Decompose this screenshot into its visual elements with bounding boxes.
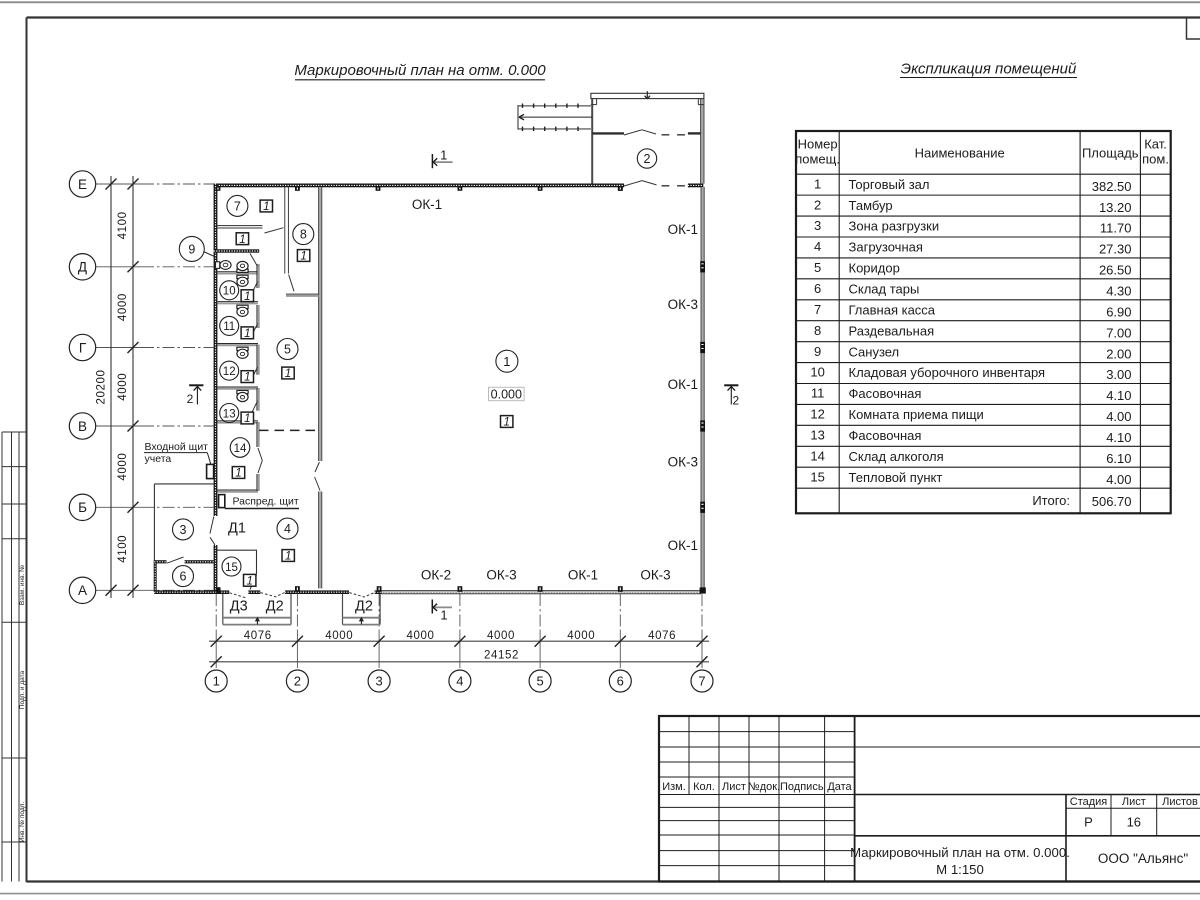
svg-text:Е: Е bbox=[78, 177, 87, 192]
svg-text:6: 6 bbox=[180, 570, 187, 584]
svg-text:Маркировочный план на отм. 0.0: Маркировочный план на отм. 0.000 bbox=[294, 62, 546, 79]
svg-text:Лист: Лист bbox=[722, 781, 746, 793]
svg-text:3: 3 bbox=[180, 523, 187, 537]
svg-text:3: 3 bbox=[814, 218, 821, 233]
svg-text:ОК-1: ОК-1 bbox=[668, 222, 698, 237]
svg-text:Зона разгрузки: Зона разгрузки bbox=[849, 219, 940, 234]
svg-text:1: 1 bbox=[239, 234, 245, 246]
svg-text:Тепловой пункт: Тепловой пункт bbox=[849, 470, 943, 485]
svg-text:Коридор: Коридор bbox=[849, 261, 900, 276]
svg-text:1: 1 bbox=[213, 674, 220, 689]
svg-text:Д1: Д1 bbox=[228, 521, 246, 537]
svg-text:4: 4 bbox=[814, 239, 821, 254]
svg-text:1: 1 bbox=[244, 413, 250, 425]
svg-text:12: 12 bbox=[223, 366, 236, 378]
svg-text:В: В bbox=[78, 419, 87, 434]
svg-text:4: 4 bbox=[284, 522, 291, 536]
svg-text:Лист: Лист bbox=[1122, 796, 1146, 808]
svg-text:Кладовая уборочного инвентаря: Кладовая уборочного инвентаря bbox=[849, 365, 1046, 380]
svg-text:5: 5 bbox=[284, 343, 291, 357]
svg-text:Загрузочная: Загрузочная bbox=[849, 240, 923, 255]
svg-text:Номер: Номер bbox=[798, 137, 838, 152]
svg-text:Инв. № подл.: Инв. № подл. bbox=[19, 802, 26, 843]
svg-text:А: А bbox=[78, 583, 87, 598]
svg-text:Р: Р bbox=[1084, 815, 1093, 830]
svg-text:ОК-3: ОК-3 bbox=[668, 297, 698, 312]
svg-text:2.00: 2.00 bbox=[1106, 346, 1131, 361]
svg-text:7: 7 bbox=[698, 674, 705, 689]
svg-text:1: 1 bbox=[300, 251, 306, 263]
svg-text:ОК-1: ОК-1 bbox=[412, 197, 442, 212]
svg-text:1: 1 bbox=[285, 368, 291, 380]
svg-text:Склад тары: Склад тары bbox=[849, 282, 920, 297]
svg-text:1: 1 bbox=[285, 551, 291, 563]
svg-text:26.50: 26.50 bbox=[1099, 263, 1132, 278]
svg-text:5: 5 bbox=[814, 260, 821, 275]
svg-text:Склад алкоголя: Склад алкоголя bbox=[849, 449, 944, 464]
svg-text:15: 15 bbox=[225, 562, 238, 574]
svg-text:11: 11 bbox=[811, 386, 825, 401]
svg-text:13.20: 13.20 bbox=[1099, 200, 1132, 215]
svg-text:3.00: 3.00 bbox=[1106, 367, 1131, 382]
svg-text:Главная касса: Главная касса bbox=[849, 302, 936, 317]
svg-text:Распред. щит: Распред. щит bbox=[233, 496, 299, 508]
svg-text:ОК-1: ОК-1 bbox=[568, 568, 598, 583]
svg-text:Взам. инв. №: Взам. инв. № bbox=[19, 565, 26, 605]
svg-text:11.70: 11.70 bbox=[1100, 221, 1132, 236]
svg-text:ОК-2: ОК-2 bbox=[421, 568, 451, 583]
svg-text:Экспликация помещений: Экспликация помещений bbox=[901, 61, 1077, 78]
svg-text:Дата: Дата bbox=[827, 781, 852, 793]
svg-text:Маркировочный план на отм. 0.0: Маркировочный план на отм. 0.000. bbox=[850, 845, 1070, 860]
svg-text:2: 2 bbox=[294, 674, 301, 689]
svg-text:Г: Г bbox=[79, 340, 87, 355]
svg-text:ОК-3: ОК-3 bbox=[668, 455, 698, 470]
svg-text:1: 1 bbox=[244, 328, 250, 340]
svg-text:4000: 4000 bbox=[117, 453, 129, 481]
svg-text:Д3: Д3 bbox=[230, 598, 248, 614]
svg-text:27.30: 27.30 bbox=[1099, 242, 1132, 257]
svg-text:Наименование: Наименование bbox=[915, 146, 1005, 161]
svg-text:13: 13 bbox=[223, 408, 236, 420]
svg-text:382.50: 382.50 bbox=[1092, 179, 1132, 194]
svg-text:6.10: 6.10 bbox=[1106, 451, 1131, 466]
svg-text:3: 3 bbox=[375, 674, 382, 689]
svg-text:1: 1 bbox=[244, 372, 250, 384]
svg-text:Входной щит: Входной щит bbox=[145, 441, 209, 453]
svg-text:10: 10 bbox=[810, 365, 824, 380]
svg-text:ОК-1: ОК-1 bbox=[668, 377, 698, 392]
svg-text:Фасовочная: Фасовочная bbox=[849, 428, 922, 443]
svg-text:20200: 20200 bbox=[96, 370, 108, 405]
svg-text:7.00: 7.00 bbox=[1106, 325, 1131, 340]
svg-text:4000: 4000 bbox=[407, 630, 435, 642]
svg-text:2: 2 bbox=[732, 394, 739, 408]
svg-text:Подп. и дата: Подп. и дата bbox=[19, 670, 26, 709]
svg-text:4000: 4000 bbox=[117, 293, 129, 321]
svg-text:9: 9 bbox=[188, 243, 195, 257]
svg-text:1: 1 bbox=[235, 468, 241, 480]
svg-text:1: 1 bbox=[246, 575, 252, 587]
svg-text:7: 7 bbox=[814, 302, 821, 317]
svg-text:Тамбур: Тамбур bbox=[849, 198, 893, 213]
svg-text:Листов: Листов bbox=[1162, 796, 1198, 808]
svg-text:ОК-3: ОК-3 bbox=[486, 568, 516, 583]
svg-text:11: 11 bbox=[223, 321, 235, 333]
svg-text:Площадь: Площадь bbox=[1082, 146, 1139, 161]
svg-text:506.70: 506.70 bbox=[1092, 494, 1132, 509]
svg-text:16: 16 bbox=[1127, 815, 1141, 830]
svg-text:10: 10 bbox=[223, 286, 236, 298]
svg-text:Кат.: Кат. bbox=[1144, 137, 1167, 152]
svg-text:4.00: 4.00 bbox=[1106, 472, 1131, 487]
svg-text:Итого:: Итого: bbox=[1032, 493, 1070, 508]
svg-text:4: 4 bbox=[456, 674, 463, 689]
svg-text:9: 9 bbox=[814, 344, 821, 359]
svg-text:Стадия: Стадия bbox=[1070, 796, 1108, 808]
svg-text:4000: 4000 bbox=[567, 630, 595, 642]
svg-text:2: 2 bbox=[814, 197, 821, 212]
svg-text:8: 8 bbox=[300, 228, 307, 242]
svg-text:Кол.: Кол. bbox=[693, 781, 715, 793]
svg-text:ОК-3: ОК-3 bbox=[640, 568, 670, 583]
svg-text:Изм.: Изм. bbox=[662, 781, 686, 793]
svg-text:4100: 4100 bbox=[117, 211, 129, 239]
svg-text:4.10: 4.10 bbox=[1106, 430, 1131, 445]
svg-text:2: 2 bbox=[187, 392, 194, 406]
svg-text:учета: учета bbox=[145, 453, 172, 465]
svg-text:14: 14 bbox=[810, 448, 824, 463]
svg-text:Санузел: Санузел bbox=[849, 344, 900, 359]
svg-text:Раздевальная: Раздевальная bbox=[849, 323, 935, 338]
svg-text:помещ.: помещ. bbox=[795, 152, 840, 167]
svg-text:4000: 4000 bbox=[325, 630, 353, 642]
svg-text:Подпись: Подпись bbox=[780, 781, 824, 793]
svg-text:4.30: 4.30 bbox=[1106, 284, 1131, 299]
svg-text:4000: 4000 bbox=[487, 630, 515, 642]
svg-text:Д2: Д2 bbox=[266, 598, 284, 614]
svg-text:ОК-1: ОК-1 bbox=[668, 538, 698, 553]
svg-text:Торговый зал: Торговый зал bbox=[849, 177, 930, 192]
svg-text:8: 8 bbox=[814, 323, 821, 338]
svg-text:15: 15 bbox=[810, 469, 824, 484]
svg-text:Б: Б bbox=[78, 500, 87, 515]
svg-text:1: 1 bbox=[244, 291, 250, 303]
svg-text:4076: 4076 bbox=[244, 630, 272, 642]
svg-text:4.00: 4.00 bbox=[1106, 409, 1131, 424]
svg-text:12: 12 bbox=[810, 407, 824, 422]
svg-text:2: 2 bbox=[644, 152, 651, 166]
svg-text:1: 1 bbox=[814, 176, 821, 191]
svg-text:7: 7 bbox=[234, 200, 241, 214]
svg-text:№док.: №док. bbox=[748, 781, 780, 793]
svg-text:Д: Д bbox=[78, 260, 87, 275]
svg-text:Комната приема пищи: Комната приема пищи bbox=[849, 407, 984, 422]
svg-text:пом.: пом. bbox=[1142, 152, 1169, 167]
svg-text:6: 6 bbox=[617, 674, 624, 689]
svg-text:6: 6 bbox=[814, 281, 821, 296]
svg-text:1: 1 bbox=[440, 608, 447, 623]
svg-text:13: 13 bbox=[810, 428, 824, 443]
svg-text:1: 1 bbox=[503, 417, 509, 429]
svg-text:6.90: 6.90 bbox=[1106, 304, 1131, 319]
svg-text:14: 14 bbox=[234, 443, 247, 455]
svg-text:Д2: Д2 bbox=[355, 599, 373, 615]
svg-text:5: 5 bbox=[536, 674, 543, 689]
svg-text:1: 1 bbox=[503, 354, 510, 369]
svg-text:М 1:150: М 1:150 bbox=[936, 862, 984, 877]
svg-text:4076: 4076 bbox=[648, 630, 676, 642]
svg-text:4100: 4100 bbox=[117, 535, 129, 563]
svg-text:Фасовочная: Фасовочная bbox=[849, 386, 922, 401]
svg-text:ООО "Альянс": ООО "Альянс" bbox=[1098, 851, 1188, 866]
svg-text:0.000: 0.000 bbox=[491, 387, 522, 401]
svg-text:1: 1 bbox=[263, 201, 269, 213]
svg-text:1: 1 bbox=[440, 148, 447, 163]
svg-text:4.10: 4.10 bbox=[1106, 388, 1131, 403]
svg-text:24152: 24152 bbox=[484, 649, 519, 661]
svg-text:4000: 4000 bbox=[117, 373, 129, 401]
